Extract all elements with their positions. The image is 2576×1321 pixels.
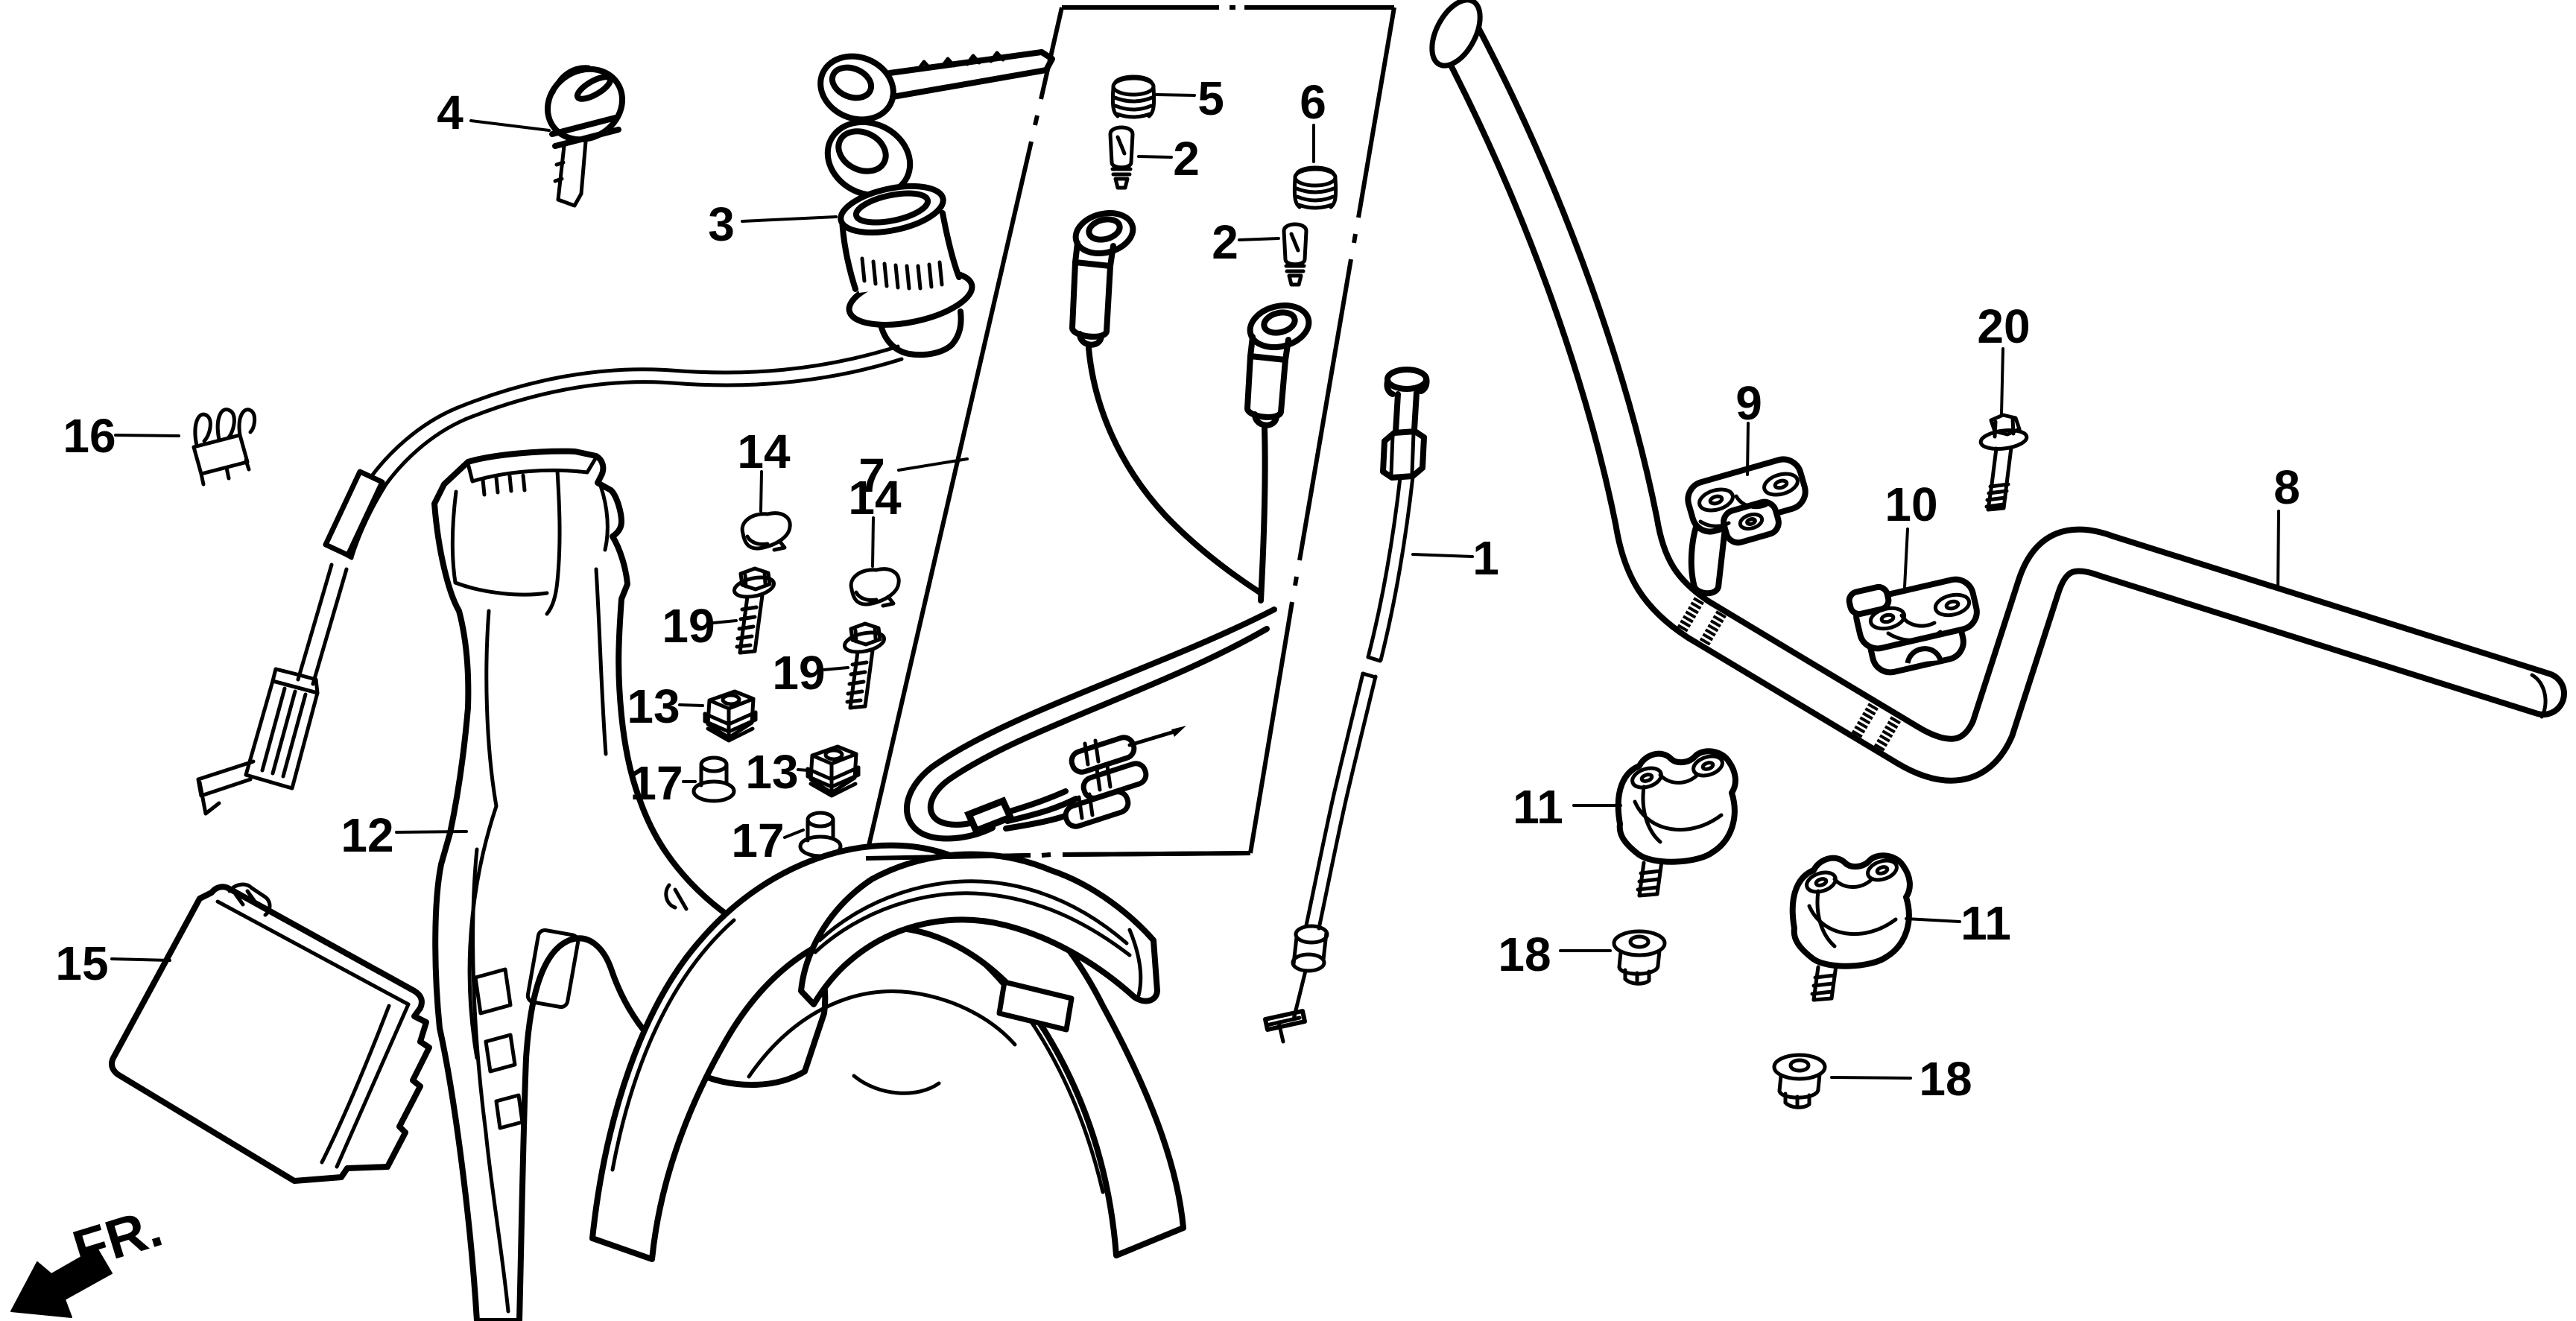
svg-text:13: 13 — [627, 679, 680, 733]
svg-text:8: 8 — [2273, 460, 2300, 514]
svg-text:4: 4 — [437, 86, 463, 139]
svg-text:16: 16 — [63, 409, 115, 463]
svg-text:17: 17 — [731, 814, 784, 867]
svg-text:15: 15 — [55, 937, 108, 990]
svg-text:3: 3 — [708, 197, 735, 251]
svg-text:12: 12 — [341, 808, 393, 862]
svg-text:11: 11 — [1513, 780, 1563, 834]
svg-text:19: 19 — [772, 646, 825, 700]
svg-text:20: 20 — [1977, 300, 2030, 353]
svg-text:1: 1 — [1472, 531, 1499, 585]
svg-text:18: 18 — [1919, 1052, 1972, 1106]
svg-text:9: 9 — [1735, 376, 1762, 430]
svg-text:18: 18 — [1498, 928, 1551, 981]
svg-text:14: 14 — [737, 425, 791, 478]
svg-text:13: 13 — [745, 745, 798, 799]
svg-text:19: 19 — [662, 599, 715, 653]
svg-text:5: 5 — [1197, 72, 1224, 125]
svg-text:10: 10 — [1884, 478, 1937, 531]
svg-text:6: 6 — [1300, 75, 1326, 129]
svg-text:14: 14 — [848, 471, 902, 525]
svg-text:2: 2 — [1173, 132, 1200, 186]
svg-text:11: 11 — [1961, 896, 2011, 950]
svg-text:17: 17 — [630, 756, 683, 810]
svg-text:2: 2 — [1212, 215, 1238, 269]
